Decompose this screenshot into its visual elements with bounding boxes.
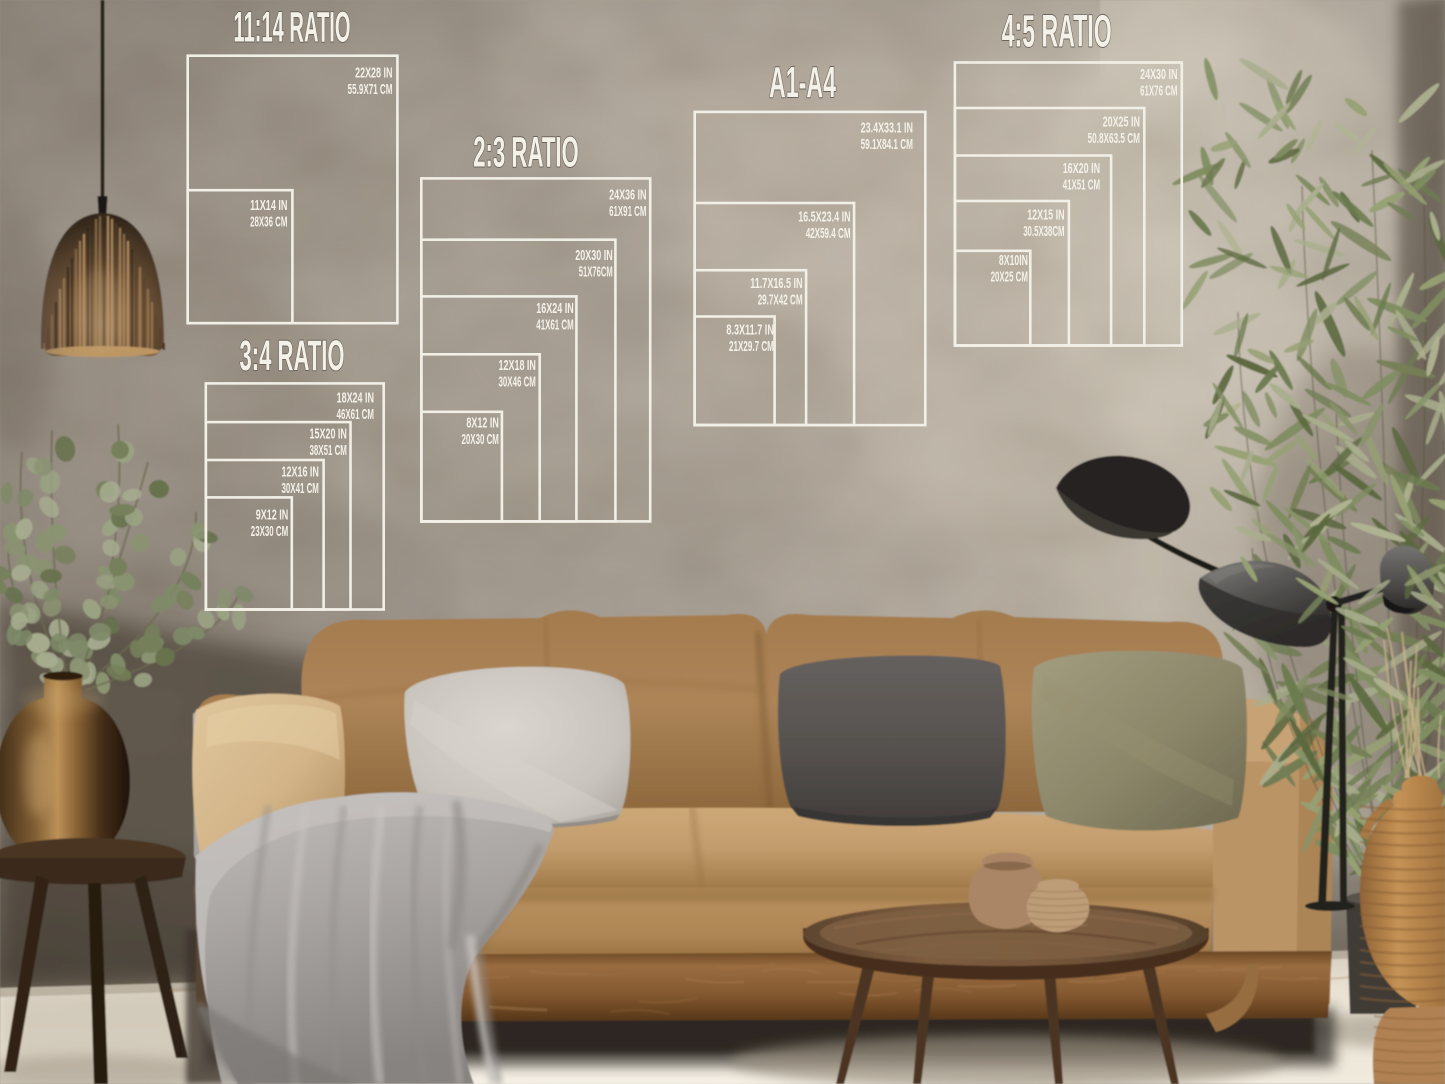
svg-text:2:3 RATIO: 2:3 RATIO [473,128,579,176]
svg-text:28X36 CM: 28X36 CM [250,213,287,230]
svg-text:30.5X38CM: 30.5X38CM [1023,223,1064,240]
svg-text:41X61 CM: 41X61 CM [536,317,573,334]
svg-text:51X76CM: 51X76CM [579,264,613,281]
svg-text:29.7X42 CM: 29.7X42 CM [758,292,803,309]
svg-text:20X25 CM: 20X25 CM [991,269,1028,286]
svg-text:4:5 RATIO: 4:5 RATIO [1002,6,1112,57]
svg-text:9X12 IN: 9X12 IN [256,506,289,523]
svg-text:24X30 IN: 24X30 IN [1140,66,1177,83]
svg-text:30X41 CM: 30X41 CM [282,480,319,497]
svg-text:3:4 RATIO: 3:4 RATIO [240,332,345,380]
svg-text:8.3X11.7 IN: 8.3X11.7 IN [726,322,774,339]
svg-text:30X46 CM: 30X46 CM [499,373,536,390]
svg-text:24X36 IN: 24X36 IN [609,187,646,204]
svg-text:16X24 IN: 16X24 IN [536,300,573,317]
svg-text:20X30 IN: 20X30 IN [575,247,612,264]
svg-text:15X20 IN: 15X20 IN [310,425,347,442]
svg-text:59.1X84.1 CM: 59.1X84.1 CM [861,136,913,153]
svg-text:21X29.7 CM: 21X29.7 CM [729,338,774,355]
svg-text:12X18 IN: 12X18 IN [499,357,536,374]
svg-text:41X51 CM: 41X51 CM [1063,177,1100,194]
svg-text:23.4X33.1 IN: 23.4X33.1 IN [861,119,913,136]
svg-text:8X12 IN: 8X12 IN [466,415,499,432]
svg-text:61X91 CM: 61X91 CM [609,203,646,220]
svg-text:22X28 IN: 22X28 IN [355,65,392,82]
svg-text:55.9X71 CM: 55.9X71 CM [348,81,393,98]
svg-text:12X16 IN: 12X16 IN [282,464,319,481]
svg-text:61X76 CM: 61X76 CM [1140,83,1177,100]
svg-text:38X51 CM: 38X51 CM [310,442,347,459]
svg-text:20X30 CM: 20X30 CM [462,431,499,448]
svg-text:20X25 IN: 20X25 IN [1103,114,1140,131]
svg-text:18X24 IN: 18X24 IN [337,389,374,406]
svg-text:11:14 RATIO: 11:14 RATIO [234,4,351,52]
svg-text:11X14 IN: 11X14 IN [250,197,287,214]
svg-text:11.7X16.5 IN: 11.7X16.5 IN [750,275,802,292]
svg-text:46X61 CM: 46X61 CM [337,406,374,423]
svg-text:16X20 IN: 16X20 IN [1063,160,1100,177]
svg-text:50.8X63.5 CM: 50.8X63.5 CM [1088,130,1140,147]
svg-text:23X30 CM: 23X30 CM [251,523,288,540]
svg-text:12X15 IN: 12X15 IN [1027,207,1064,224]
svg-text:A1-A4: A1-A4 [769,58,836,107]
svg-text:16.5X23.4 IN: 16.5X23.4 IN [798,209,850,226]
svg-text:42X59.4 CM: 42X59.4 CM [806,225,851,242]
svg-text:8X10IN: 8X10IN [999,252,1028,269]
